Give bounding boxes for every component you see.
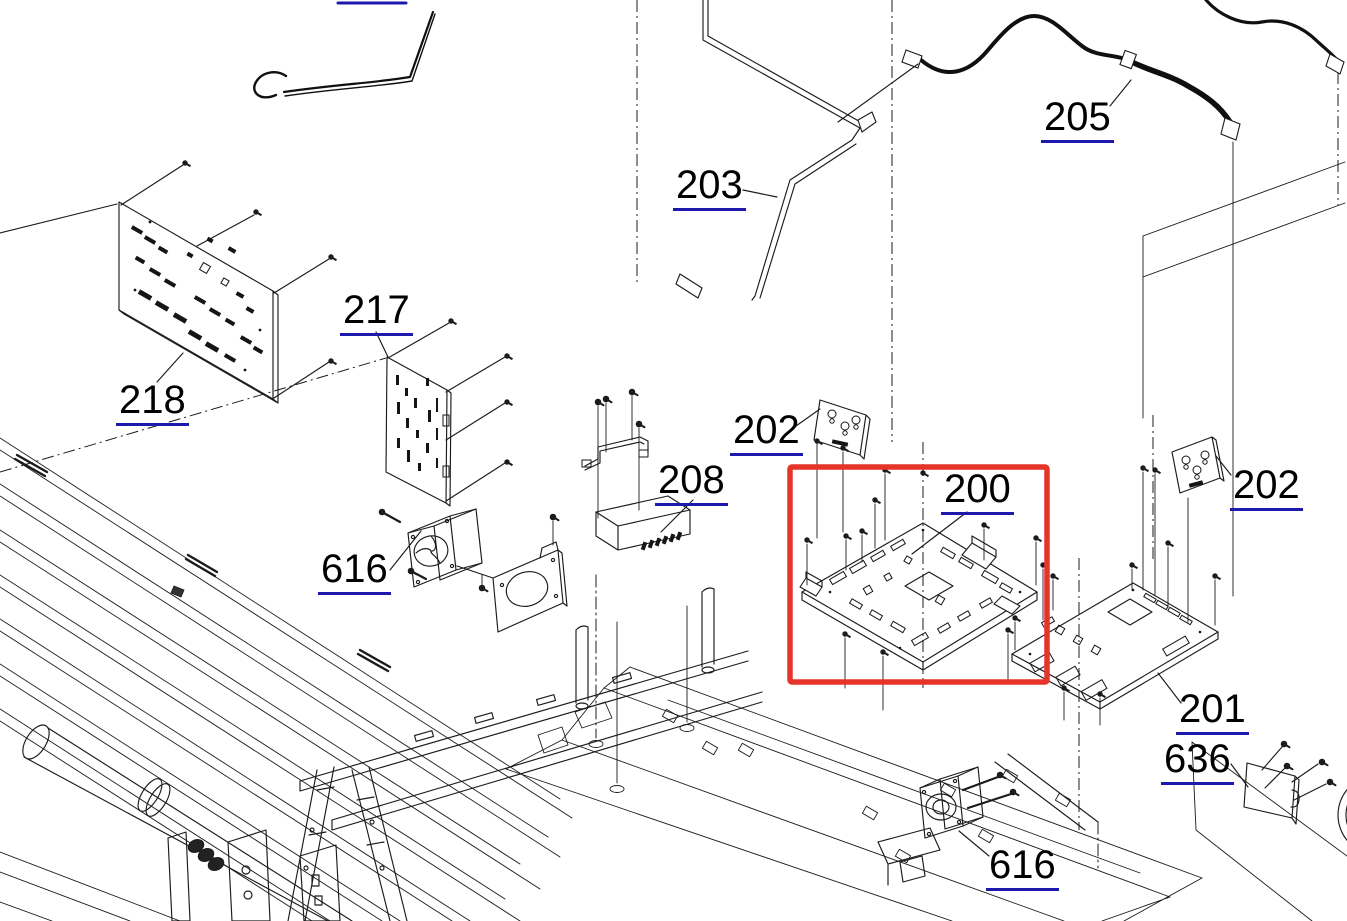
part-label-616-bottom[interactable]: 616: [986, 845, 1059, 891]
exploded-parts-diagram-page: { "diagram": { "type": "exploded-parts-d…: [0, 0, 1347, 921]
leader-616-bottom: [959, 831, 989, 856]
leader-202-right: [1216, 456, 1231, 475]
main-board-200: [800, 438, 1059, 710]
right-wall: [1143, 162, 1345, 418]
centerlines: [0, 0, 1338, 830]
board-202-right: [1172, 437, 1231, 493]
cable-top-left: [254, 3, 435, 97]
part-label-202-left[interactable]: 202: [730, 410, 803, 456]
part-label-202-right[interactable]: 202: [1230, 465, 1303, 511]
plate-636: [1231, 741, 1347, 855]
part-label-208[interactable]: 208: [655, 460, 728, 506]
part-label-217[interactable]: 217: [340, 290, 413, 336]
leader-616-left: [390, 531, 421, 570]
roller-assembly: [17, 721, 352, 921]
chassis-rails: [0, 438, 572, 921]
part-label-203[interactable]: 203: [673, 165, 746, 211]
part-label-636[interactable]: 636: [1161, 739, 1234, 785]
fan-616-left: [379, 509, 567, 632]
circuit-board-217: [376, 318, 513, 506]
part-label-205[interactable]: 205: [1041, 97, 1114, 143]
leader-203: [743, 190, 777, 197]
circuit-board-218: [0, 160, 337, 403]
leader-200: [912, 512, 967, 554]
center-frame: [288, 588, 762, 921]
bracket-203: [676, 0, 876, 300]
part-label-616-left[interactable]: 616: [318, 549, 391, 595]
part-label-201[interactable]: 201: [1176, 689, 1249, 735]
part-label-218[interactable]: 218: [116, 380, 189, 426]
diagram-scene: 218 217 203 205 202 208 616 200 202 201 …: [0, 0, 1347, 921]
part-label-200[interactable]: 200: [941, 469, 1014, 515]
